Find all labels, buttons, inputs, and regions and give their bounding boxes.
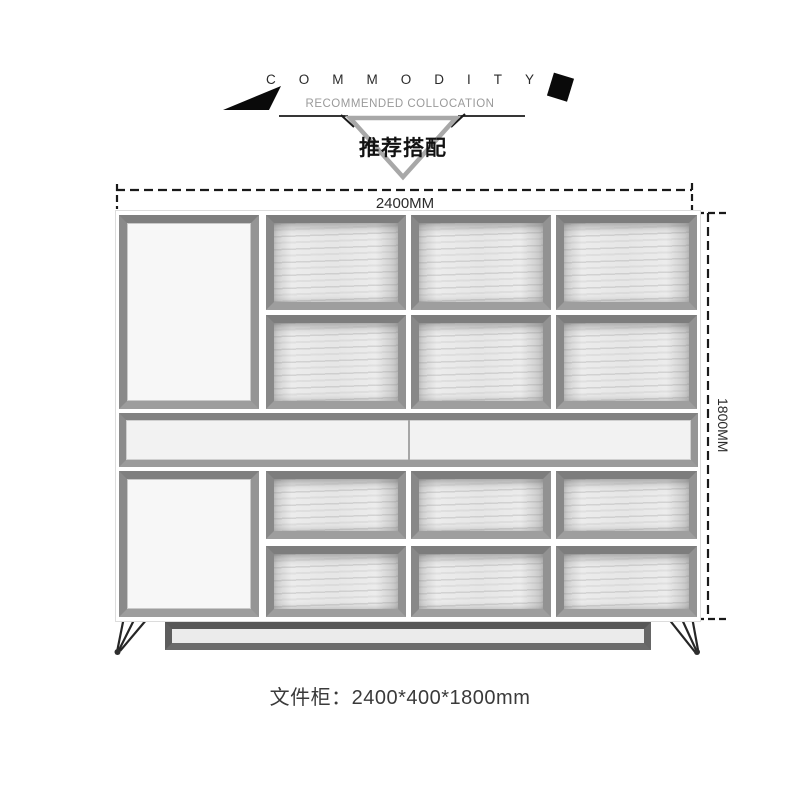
cabinet-door-top-left — [119, 215, 259, 409]
wood-panel — [266, 546, 406, 617]
cabinet-drawing — [115, 210, 701, 622]
wood-panel — [411, 546, 551, 617]
drawer-center-divider — [408, 420, 410, 460]
wood-panel — [556, 471, 697, 539]
wood-panel — [411, 471, 551, 539]
product-showcase-page: COMMODITY RECOMMENDED COLLOCATION 推荐搭配 2… — [0, 0, 800, 800]
wood-panel — [266, 471, 406, 539]
cabinet-middle-drawer — [119, 413, 698, 467]
cabinet-door-bottom-left — [119, 471, 259, 617]
commodity-title: COMMODITY — [225, 72, 575, 87]
height-dimension-label: 1800MM — [715, 398, 731, 460]
wood-panel — [556, 546, 697, 617]
wood-panel — [556, 215, 697, 310]
wood-panel — [266, 215, 406, 310]
recommend-badge-text: 推荐搭配 — [340, 132, 466, 162]
wood-panel — [556, 315, 697, 409]
recommended-collocation-subtitle: RECOMMENDED COLLOCATION — [250, 98, 550, 110]
product-caption: 文件柜：2400*400*1800mm — [0, 681, 800, 710]
wood-panel — [411, 315, 551, 409]
wood-panel — [411, 215, 551, 310]
wood-panel — [266, 315, 406, 409]
cabinet-base-bar — [165, 622, 651, 650]
